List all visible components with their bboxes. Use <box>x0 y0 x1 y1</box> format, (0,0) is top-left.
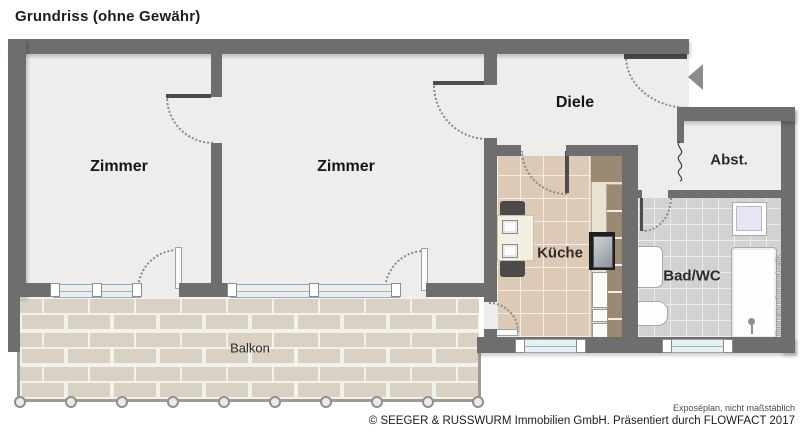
door-leaf-bathroom <box>640 198 643 231</box>
wall-zimmer-divider-lower <box>211 143 222 297</box>
railing-post <box>472 396 484 408</box>
washing-machine-door <box>736 206 762 231</box>
wall-kitchen-top-b <box>566 145 622 156</box>
window-post <box>132 283 142 297</box>
room-label-bad: Bad/WC <box>663 268 721 285</box>
balcony-railing-bottom <box>17 399 480 402</box>
wall-kitchen-bath-divider <box>622 145 638 353</box>
scale-disclaimer: Exposéplan, nicht maßstäblich <box>673 403 795 413</box>
wall-kitchen-left <box>484 138 497 302</box>
wall-bath-top-a <box>622 190 642 198</box>
bathtub <box>731 247 777 339</box>
railing-post <box>269 396 281 408</box>
wall-zimmer-divider-upper <box>211 54 222 97</box>
door-leaf-entrance <box>624 54 687 59</box>
wall-bottom-segment <box>179 283 231 297</box>
outside-area <box>689 39 795 107</box>
wall-abst-top <box>677 107 795 121</box>
room-label-diele: Diele <box>556 94 594 112</box>
wall-balcony-left <box>8 297 20 352</box>
stove-top <box>593 236 613 268</box>
wall-diele-divider-upper <box>484 54 497 85</box>
railing-post <box>218 396 230 408</box>
window-post <box>50 283 60 297</box>
window-post <box>227 283 237 297</box>
railing-post <box>65 396 77 408</box>
wall-outer-left <box>8 39 26 297</box>
room-label-balkon: Balkon <box>230 341 270 356</box>
railing-post <box>320 396 332 408</box>
room-label-abst: Abst. <box>710 152 748 169</box>
wall-bottom-segment <box>426 283 497 297</box>
kitchen-appliance <box>592 323 608 338</box>
room-label-zimmer-left: Zimmer <box>90 158 148 176</box>
window-post <box>515 339 525 353</box>
bathtub-faucet <box>748 318 755 325</box>
balcony-railing-left <box>17 352 20 400</box>
place-setting <box>502 244 518 258</box>
railing-post <box>422 396 434 408</box>
wall-kitchen-top-a <box>497 145 521 156</box>
balcony-railing-right <box>478 351 481 402</box>
window-post <box>92 283 102 297</box>
window-post <box>662 339 672 353</box>
room-label-kueche: Küche <box>537 245 583 262</box>
window-bathroom <box>665 339 732 353</box>
page-title: Grundriss (ohne Gewähr) <box>15 8 200 25</box>
railing-post <box>371 396 383 408</box>
room-label-zimmer-mid: Zimmer <box>317 158 375 176</box>
window-post <box>723 339 733 353</box>
window-post <box>309 283 319 297</box>
kitchen-appliance <box>592 309 608 322</box>
wall-outer-top <box>8 39 689 54</box>
wall-bath-top-b <box>668 190 795 198</box>
window-post <box>391 283 401 297</box>
door-leaf-kitchen <box>565 151 569 193</box>
floorplan-page: Grundriss (ohne Gewähr) <box>0 0 800 439</box>
abst-folding-door-squiggle <box>672 140 688 182</box>
kitchen-chair <box>500 260 525 277</box>
kitchen-sink-unit <box>592 272 608 308</box>
copyright-line: © SEEGER & RUSSWURM Immobilien GmbH. Prä… <box>369 415 795 427</box>
railing-post <box>116 396 128 408</box>
illustrator-watermark: Illustration©ImmoGrafik <box>776 236 783 356</box>
entrance-arrow-icon <box>688 64 703 90</box>
bathtub-faucet-stem <box>751 325 753 334</box>
window-kitchen <box>518 339 585 353</box>
window-post <box>576 339 586 353</box>
railing-post <box>167 396 179 408</box>
kitchen-cabinet <box>591 156 622 182</box>
railing-post <box>14 396 26 408</box>
place-setting <box>502 220 518 234</box>
wall-outer-right <box>781 107 795 353</box>
door-leaf-zimmer-left <box>166 94 211 98</box>
door-leaf-zimmer-mid <box>433 81 485 85</box>
